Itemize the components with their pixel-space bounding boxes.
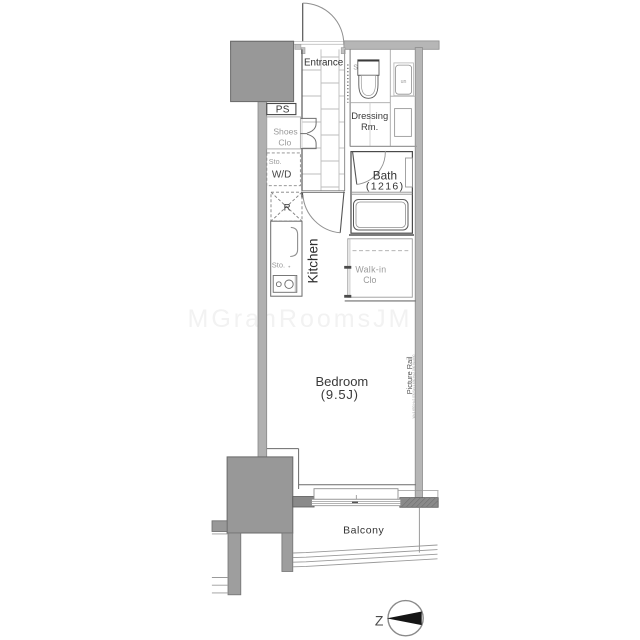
svg-text:Dressing: Dressing — [351, 110, 388, 121]
svg-text:Clo: Clo — [363, 275, 376, 285]
svg-text:Z: Z — [375, 613, 384, 629]
svg-text:Rm.: Rm. — [361, 121, 378, 132]
svg-text:W/D: W/D — [272, 170, 291, 181]
svg-text:Kitchen: Kitchen — [305, 238, 320, 283]
svg-text:(9.5J): (9.5J) — [321, 387, 359, 402]
svg-text:Balcony: Balcony — [343, 524, 384, 536]
svg-text:Sto.: Sto. — [272, 261, 285, 270]
svg-text:PS: PS — [276, 105, 290, 116]
svg-text:Walk-in: Walk-in — [355, 265, 386, 275]
svg-text:Sto.: Sto. — [269, 157, 282, 166]
svg-text:Entrance: Entrance — [304, 57, 344, 68]
svg-text:un: un — [401, 79, 407, 85]
svg-text:W=1,650 H=2,030 W=1,650 H=2,03: W=1,650 H=2,030 W=1,650 H=2,030 W=830 — [412, 354, 416, 418]
svg-text:Shoes: Shoes — [273, 126, 297, 136]
svg-text:(1216): (1216) — [366, 180, 405, 192]
svg-text:R: R — [284, 202, 291, 213]
svg-text:MGranRoomsJM: MGranRoomsJM — [188, 305, 413, 333]
svg-text:Clo: Clo — [278, 138, 291, 148]
